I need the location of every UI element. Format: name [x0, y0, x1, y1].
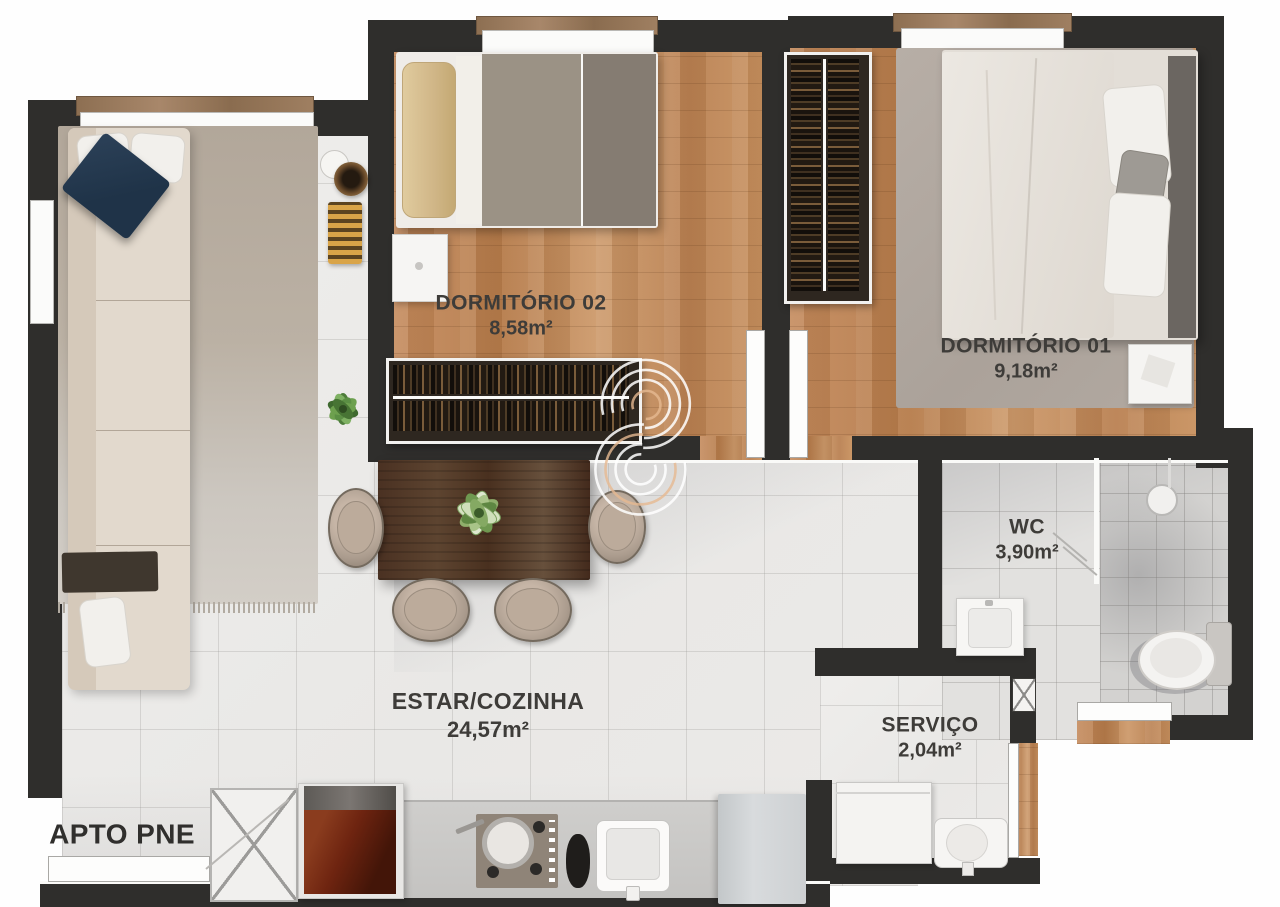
wall-edge	[942, 460, 1228, 463]
dorm01-door-leaf	[789, 330, 808, 458]
dorm02-window	[482, 30, 654, 54]
laundry-faucet	[962, 862, 974, 876]
washing-machine-panel	[836, 792, 930, 794]
wall-wc-top	[852, 436, 1253, 462]
sofa-cushion-line	[96, 300, 190, 301]
dorm01-pillow	[1103, 192, 1172, 298]
room-name: DORMITÓRIO 02	[436, 290, 607, 316]
duct-shaft	[1012, 678, 1036, 712]
dorm02-door-leaf	[746, 330, 765, 458]
cooktop-controls	[549, 820, 555, 882]
dorm01-wardrobe-clothes	[828, 59, 859, 291]
dorm01-wardrobe-rail	[823, 59, 826, 291]
dorm02-blanket-fold	[581, 54, 583, 226]
cooktop-pan	[482, 817, 534, 869]
room-label-servico: SERVIÇO 2,04m²	[882, 712, 979, 763]
shower-glass	[1094, 458, 1099, 584]
dining-chair-right	[588, 490, 646, 564]
burner	[487, 866, 499, 878]
room-name: DORMITÓRIO 01	[941, 333, 1112, 359]
dining-chair-bottom-1	[392, 578, 470, 642]
wall-bedrooms-bottom-mid	[762, 436, 790, 462]
wc-vanity-faucet	[985, 600, 993, 606]
kitchen-counter	[398, 800, 720, 898]
entry-door-leaf	[48, 856, 210, 882]
stove-body	[304, 810, 396, 894]
dining-chair-bottom-2	[494, 578, 572, 642]
burner	[530, 863, 542, 875]
decor-bowl	[334, 162, 368, 196]
dining-plant-icon	[432, 470, 526, 556]
sofa-runner-blanket	[62, 551, 159, 593]
living-left-window	[30, 200, 54, 324]
room-area: 9,18m²	[941, 360, 1112, 385]
wc-vanity-basin	[968, 608, 1012, 648]
room-area: 2,04m²	[882, 739, 979, 764]
washing-machine	[836, 782, 932, 864]
kitchen-faucet	[626, 886, 640, 901]
dorm02-bed-sheet	[456, 56, 482, 224]
fridge	[718, 794, 806, 904]
wall-wc-right	[1228, 455, 1253, 740]
room-label-wc: WC 3,90m²	[995, 514, 1058, 565]
room-name: WC	[995, 514, 1058, 540]
wall-right-upper	[1196, 16, 1224, 436]
room-area: 8,58m²	[436, 317, 607, 342]
wc-door-threshold	[1077, 718, 1170, 744]
kettle	[566, 834, 590, 888]
toilet-seat	[1150, 638, 1202, 678]
magazine-ladder	[328, 202, 362, 264]
dorm01-wardrobe	[784, 52, 872, 304]
servico-door-leaf	[1008, 743, 1019, 858]
dorm02-wardrobe	[386, 358, 642, 444]
room-label-estar-cozinha: ESTAR/COZINHA 24,57m²	[392, 687, 585, 743]
burner	[533, 821, 545, 833]
dorm02-nightstand-knob	[415, 262, 423, 270]
laundry-tank-basin	[946, 824, 988, 862]
dining-chair-left	[328, 488, 384, 568]
living-plant-icon	[314, 376, 372, 442]
wall-wc-left	[918, 455, 942, 660]
dorm01-headboard	[1168, 56, 1196, 338]
room-label-dormitorio-01: DORMITÓRIO 01 9,18m²	[941, 333, 1112, 384]
stove-top-band	[304, 786, 396, 810]
dorm02-bed-blanket	[482, 54, 656, 226]
room-area: 24,57m²	[392, 716, 585, 744]
unit-type-text: APTO PNE	[49, 817, 195, 852]
wall-wc-bottom-right	[1170, 715, 1253, 740]
unit-type-label: APTO PNE	[49, 817, 195, 852]
dorm02-bed-pillow	[402, 62, 456, 218]
room-name: SERVIÇO	[882, 712, 979, 738]
shower-head-icon	[1146, 484, 1178, 516]
sofa-cushion-line	[96, 430, 190, 431]
dorm02-wardrobe-clothes	[393, 365, 629, 394]
dorm02-wardrobe-clothes	[393, 401, 629, 431]
shower-arm	[1168, 458, 1171, 488]
dorm01-window	[901, 28, 1064, 50]
dorm01-wardrobe-clothes	[791, 59, 821, 291]
kitchen-sink-basin	[606, 828, 660, 880]
room-area: 3,90m²	[995, 541, 1058, 566]
wc-door-leaf	[1077, 702, 1172, 721]
room-name: ESTAR/COZINHA	[392, 687, 585, 716]
room-label-dormitorio-02: DORMITÓRIO 02 8,58m²	[436, 290, 607, 341]
sofa-cushion-line	[96, 545, 190, 546]
dorm02-wardrobe-rail	[393, 396, 629, 399]
sofa-pillow-white	[78, 595, 132, 668]
kitchen-cabinet-x	[210, 788, 298, 902]
floor-plan: DORMITÓRIO 02 8,58m² DORMITÓRIO 01 9,18m…	[0, 0, 1280, 907]
